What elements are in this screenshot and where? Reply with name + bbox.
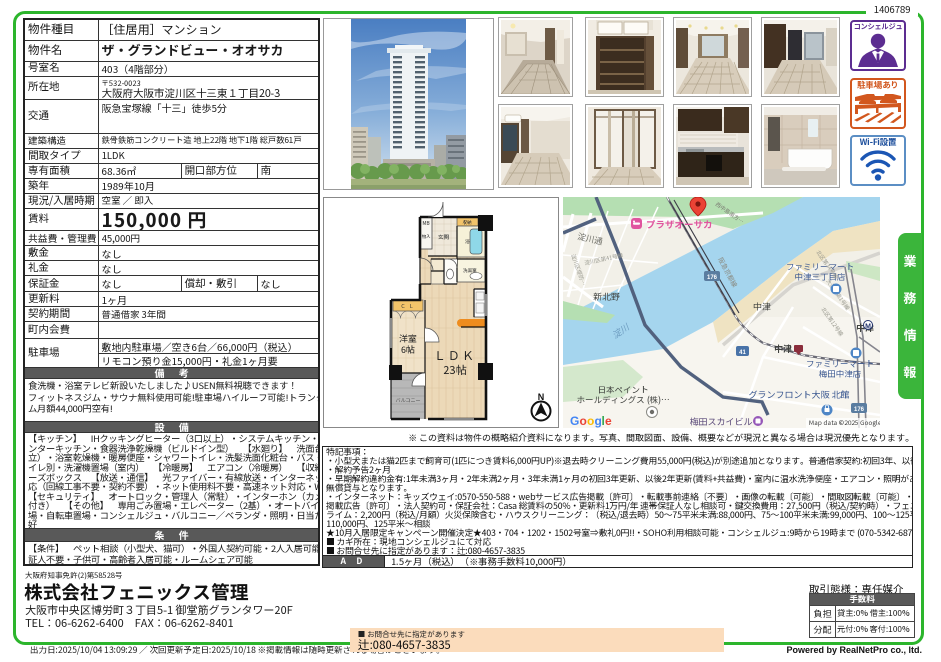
svg-text:中津: 中津 [753,300,771,313]
svg-text:物入: 物入 [422,234,431,240]
svg-text:中津: 中津 [774,342,792,355]
svg-text:41: 41 [739,350,746,356]
svg-text:M: M [865,324,871,331]
svg-text:梅田スカイビル: 梅田スカイビル [689,415,752,428]
svg-text:グランフロント大阪 北館: グランフロント大阪 北館 [748,388,849,401]
svg-text:バルコニー: バルコニー [395,397,420,404]
svg-text:23帖: 23帖 [443,362,466,378]
svg-text:176: 176 [854,407,865,413]
svg-text:C L: C L [401,302,415,310]
svg-text:e: e [605,414,612,428]
svg-text:o: o [587,414,594,428]
svg-text:プラザオーサカ: プラザオーサカ [646,217,713,231]
svg-text:o: o [580,414,587,428]
svg-text:収納: 収納 [462,220,472,226]
svg-text:梅田中津店: 梅田中津店 [818,368,862,380]
svg-text:N: N [538,392,545,402]
svg-text:G: G [570,414,579,428]
svg-text:176: 176 [707,275,718,281]
svg-text:新北野: 新北野 [593,290,620,303]
svg-text:玄関: 玄関 [438,233,450,241]
svg-text:Map data ©2025 Google: Map data ©2025 Google [809,417,880,427]
svg-text:6帖: 6帖 [401,343,415,356]
svg-text:MB: MB [422,220,429,227]
svg-text:ホールディングス (株)…: ホールディングス (株)… [577,394,670,406]
